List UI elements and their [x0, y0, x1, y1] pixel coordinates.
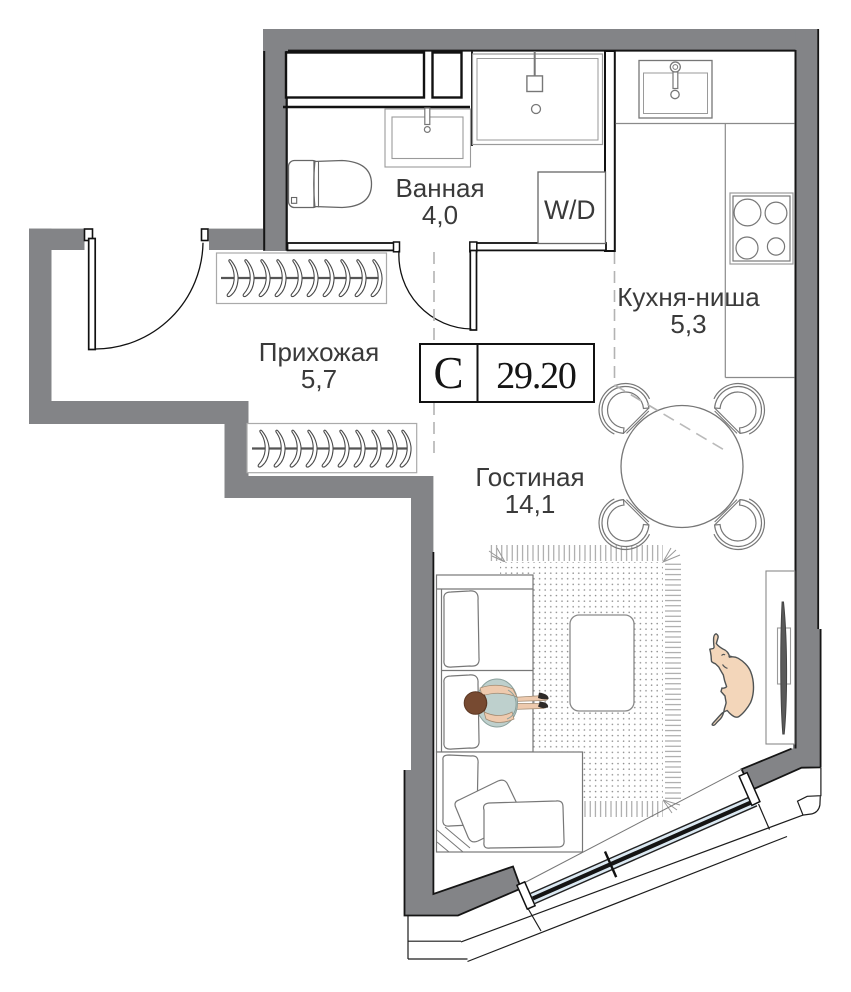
svg-text:5,3: 5,3: [670, 309, 706, 339]
svg-text:Прихожая: Прихожая: [259, 337, 379, 367]
svg-text:W/D: W/D: [544, 195, 596, 225]
svg-text:29.20: 29.20: [496, 355, 576, 397]
svg-text:Гостиная: Гостиная: [475, 462, 584, 492]
svg-text:Ванная: Ванная: [395, 173, 484, 203]
svg-text:5,7: 5,7: [301, 364, 337, 394]
svg-text:4,0: 4,0: [422, 200, 458, 230]
svg-text:Кухня-ниша: Кухня-ниша: [617, 282, 760, 312]
svg-text:14,1: 14,1: [505, 489, 556, 519]
svg-text:С: С: [433, 348, 463, 398]
